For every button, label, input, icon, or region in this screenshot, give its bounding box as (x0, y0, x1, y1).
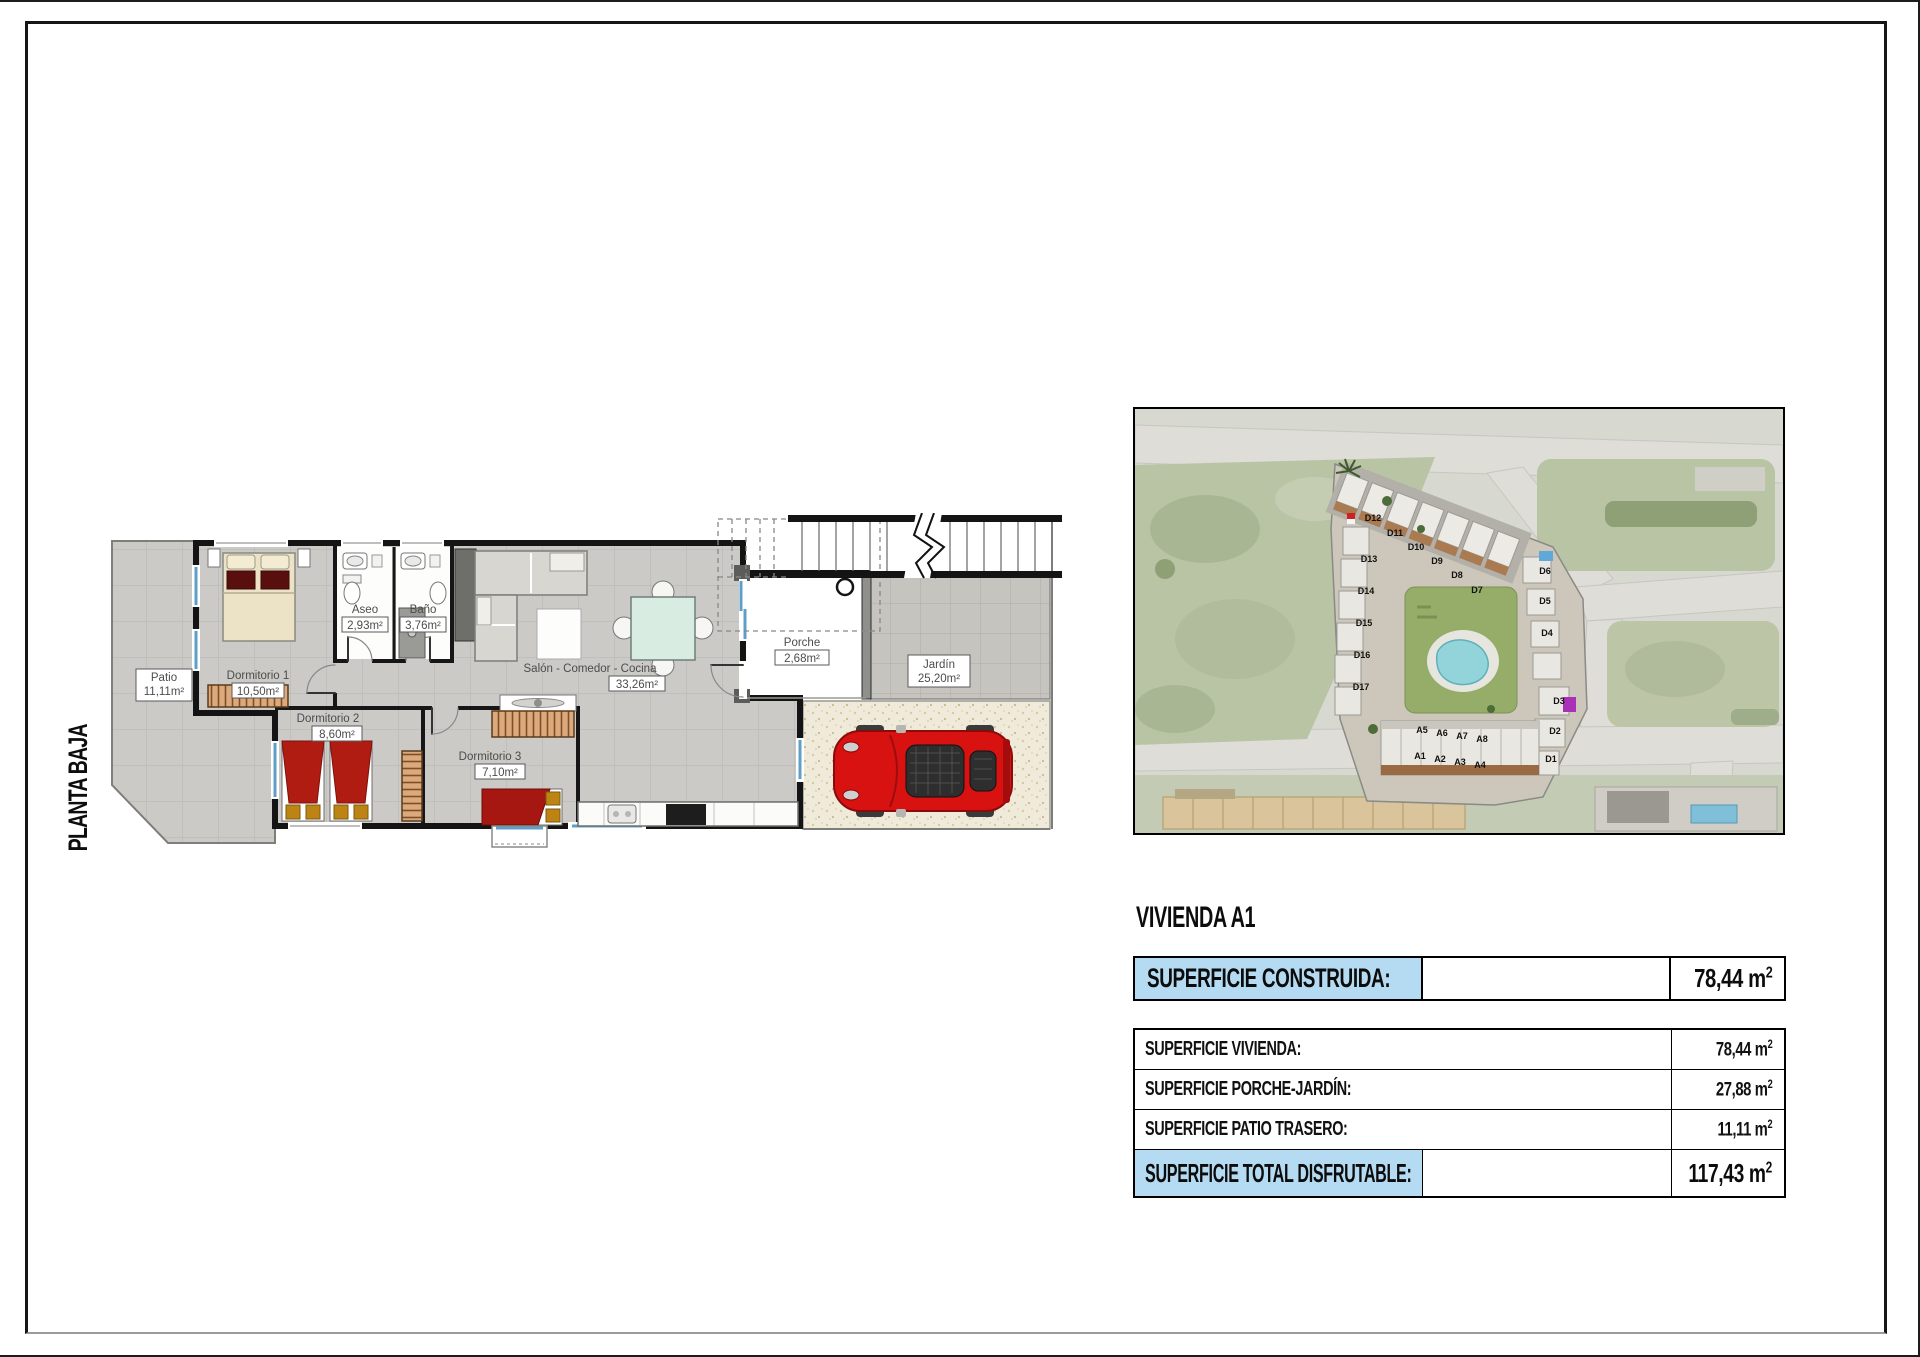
room-label-jardin: Jardín (923, 659, 955, 671)
room-label-porche: Porche (784, 637, 820, 649)
svg-text:D10: D10 (1408, 542, 1425, 552)
room-area-porche: 2,68m² (784, 653, 820, 665)
svg-text:D14: D14 (1358, 586, 1375, 596)
row-label: SUPERFICIE VIVIENDA: (1145, 1038, 1301, 1061)
table-row: SUPERFICIE VIVIENDA: 78,44 m2 (1135, 1030, 1784, 1070)
bed-double (208, 549, 310, 641)
row-value: 11,11 m2 (1671, 1110, 1784, 1149)
svg-text:A8: A8 (1476, 734, 1488, 744)
svg-text:A1: A1 (1414, 751, 1426, 761)
svg-text:D6: D6 (1539, 566, 1551, 576)
spacer-cell (1423, 1150, 1671, 1196)
svg-text:A6: A6 (1436, 728, 1448, 738)
superficie-total-row: SUPERFICIE TOTAL DISFRUTABLE: 117,43 m2 (1135, 1150, 1784, 1196)
svg-text:D3: D3 (1553, 696, 1565, 706)
superficie-construida-row: SUPERFICIE CONSTRUIDA: 78,44 m2 (1133, 956, 1786, 1001)
svg-text:D7: D7 (1471, 585, 1483, 595)
svg-text:D13: D13 (1361, 554, 1378, 564)
room-label-salon: Salón - Comedor - Cocina (524, 663, 658, 675)
room-area-patio: 11,11m² (144, 686, 185, 698)
porche-jardin-wall (862, 573, 871, 699)
table-row: SUPERFICIE PATIO TRASERO: 11,11 m2 (1135, 1110, 1784, 1150)
room-area-dormitorio1: 10,50m² (237, 686, 279, 698)
table-row: SUPERFICIE PORCHE-JARDÍN: 27,88 m2 (1135, 1070, 1784, 1110)
room-label-bano: Baño (410, 604, 437, 616)
room-label-aseo: Aseo (352, 604, 378, 616)
porch-column (837, 579, 853, 595)
svg-text:D16: D16 (1354, 650, 1371, 660)
superficie-total-label-cell: SUPERFICIE TOTAL DISFRUTABLE: (1135, 1150, 1423, 1196)
room-label-patio: Patio (151, 672, 177, 684)
room-label-dormitorio3: Dormitorio 3 (459, 751, 522, 763)
tv-bench (500, 695, 576, 711)
svg-text:A3: A3 (1454, 757, 1466, 767)
rug (537, 609, 581, 659)
svg-text:D5: D5 (1539, 596, 1551, 606)
unit-title: VIVIENDA A1 (1136, 901, 1317, 935)
svg-text:A2: A2 (1434, 754, 1446, 764)
superficie-total-value: 117,43 m2 (1671, 1150, 1784, 1196)
kitchen-counter (578, 802, 798, 826)
spacer-cell (1423, 958, 1671, 999)
room-area-salon: 33,26m² (616, 679, 658, 691)
svg-text:D17: D17 (1353, 682, 1370, 692)
row-value: 78,44 m2 (1671, 1030, 1784, 1069)
room-label-dormitorio2: Dormitorio 2 (297, 713, 360, 725)
room-area-dormitorio3: 7,10m² (482, 767, 518, 779)
site-aerial-photo: D12 D11 D10 D9 D8 D7 D13 D14 D15 D16 D17… (1133, 407, 1785, 835)
row-label: SUPERFICIE PORCHE-JARDÍN: (1145, 1078, 1351, 1101)
svg-text:A4: A4 (1474, 760, 1486, 770)
wall-pillar (734, 565, 750, 581)
svg-text:D1: D1 (1545, 754, 1557, 764)
wardrobe (402, 751, 422, 821)
surface-breakdown-table: SUPERFICIE VIVIENDA: 78,44 m2 SUPERFICIE… (1133, 1028, 1786, 1198)
svg-text:D8: D8 (1451, 570, 1463, 580)
svg-text:D9: D9 (1431, 556, 1443, 566)
room-area-aseo: 2,93m² (347, 620, 383, 632)
room-label-dormitorio1: Dormitorio 1 (227, 670, 290, 682)
room-area-dormitorio2: 8,60m² (319, 729, 355, 741)
svg-text:D4: D4 (1541, 628, 1553, 638)
storage-column (455, 549, 476, 641)
superficie-construida-label-cell: SUPERFICIE CONSTRUIDA: (1135, 958, 1423, 999)
svg-text:A7: A7 (1456, 731, 1468, 741)
rear-step (492, 826, 547, 847)
room-area-bano: 3,76m² (405, 620, 441, 632)
svg-text:D2: D2 (1549, 726, 1561, 736)
bed-single (482, 789, 562, 825)
brochure-page: PLANTA BAJA (0, 0, 1920, 1357)
svg-text:D12: D12 (1365, 513, 1382, 523)
row-label: SUPERFICIE PATIO TRASERO: (1145, 1118, 1347, 1141)
car (834, 725, 1012, 817)
floor-level-text: PLANTA BAJA (63, 724, 94, 851)
row-value: 27,88 m2 (1671, 1070, 1784, 1109)
svg-text:D11: D11 (1387, 528, 1403, 538)
svg-text:A5: A5 (1416, 725, 1428, 735)
room-area-jardin: 25,20m² (918, 673, 960, 685)
wardrobe (492, 711, 574, 737)
superficie-construida-value: 78,44 m2 (1671, 958, 1784, 999)
floor-plan: Patio 11,11m² Dormitorio 1 10,50m² Aseo … (110, 513, 1070, 865)
page-edge-top (0, 0, 1920, 2)
svg-text:D15: D15 (1356, 618, 1373, 628)
